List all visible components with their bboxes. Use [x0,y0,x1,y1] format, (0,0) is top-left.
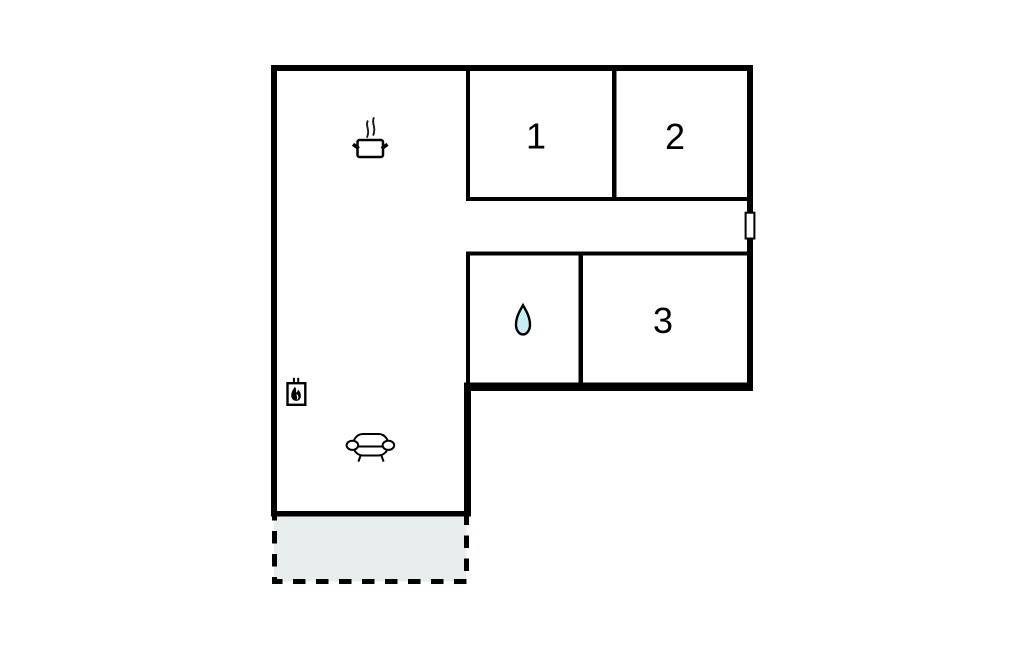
svg-text:3: 3 [653,300,673,341]
svg-text:1: 1 [526,115,546,156]
svg-text:2: 2 [665,116,685,157]
